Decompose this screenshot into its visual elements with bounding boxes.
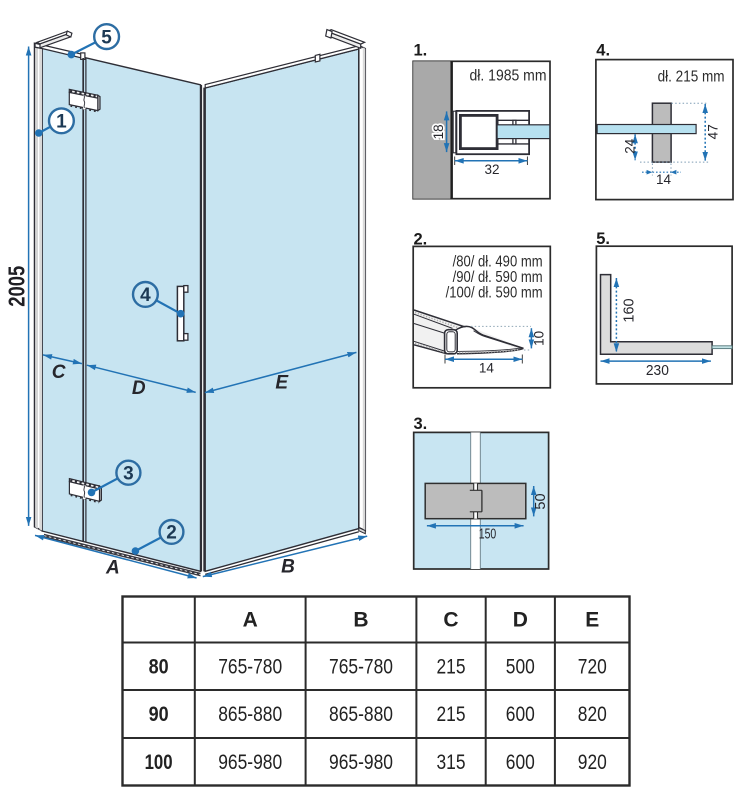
svg-text:215: 215	[437, 655, 466, 678]
svg-text:600: 600	[506, 703, 535, 726]
svg-text:B: B	[281, 556, 295, 577]
svg-text:230: 230	[646, 363, 669, 379]
svg-text:C: C	[52, 362, 66, 383]
svg-text:10: 10	[532, 331, 547, 346]
svg-text:24: 24	[622, 138, 637, 154]
svg-text:2005: 2005	[3, 266, 29, 307]
svg-text:/80/ dł. 490 mm: /80/ dł. 490 mm	[453, 254, 543, 271]
svg-text:765-780: 765-780	[329, 655, 393, 678]
svg-text:dł. 215 mm: dł. 215 mm	[658, 69, 725, 86]
svg-text:315: 315	[437, 751, 466, 774]
svg-text:4: 4	[140, 285, 151, 306]
svg-text:/90/ dł. 590 mm: /90/ dł. 590 mm	[453, 269, 543, 286]
svg-text:18: 18	[431, 124, 446, 139]
svg-text:32: 32	[484, 162, 499, 177]
svg-text:D: D	[132, 378, 146, 399]
svg-text:150: 150	[479, 526, 497, 542]
svg-text:500: 500	[506, 655, 535, 678]
svg-text:B: B	[353, 609, 368, 632]
svg-text:720: 720	[578, 655, 607, 678]
svg-text:A: A	[105, 558, 120, 579]
svg-text:3: 3	[123, 463, 134, 484]
svg-text:865-880: 865-880	[329, 703, 393, 726]
svg-text:160: 160	[622, 298, 638, 322]
svg-text:3.: 3.	[414, 415, 428, 433]
svg-text:600: 600	[506, 751, 535, 774]
svg-text:90: 90	[149, 703, 169, 726]
svg-text:80: 80	[149, 655, 169, 678]
svg-text:dł. 1985 mm: dł. 1985 mm	[470, 68, 547, 85]
svg-text:50: 50	[533, 493, 549, 509]
svg-text:100: 100	[145, 751, 173, 774]
svg-text:D: D	[513, 609, 528, 632]
svg-text:1: 1	[56, 112, 67, 133]
svg-text:765-780: 765-780	[218, 655, 282, 678]
svg-text:920: 920	[578, 751, 607, 774]
svg-text:E: E	[585, 609, 599, 632]
svg-text:965-980: 965-980	[329, 751, 393, 774]
svg-text:965-980: 965-980	[218, 751, 282, 774]
svg-text:5.: 5.	[596, 230, 610, 248]
svg-text:2: 2	[166, 523, 177, 544]
svg-text:215: 215	[437, 703, 466, 726]
svg-text:C: C	[443, 609, 458, 632]
svg-text:A: A	[243, 609, 258, 632]
svg-text:14: 14	[479, 360, 495, 375]
svg-text:47: 47	[706, 124, 721, 139]
svg-text:1.: 1.	[414, 42, 428, 60]
svg-text:5: 5	[101, 27, 112, 48]
svg-text:/100/ dł. 590 mm: /100/ dł. 590 mm	[446, 285, 543, 302]
svg-text:820: 820	[578, 703, 607, 726]
svg-text:E: E	[275, 373, 289, 394]
svg-text:14: 14	[656, 172, 672, 187]
svg-text:4.: 4.	[596, 42, 610, 60]
svg-text:865-880: 865-880	[218, 703, 282, 726]
